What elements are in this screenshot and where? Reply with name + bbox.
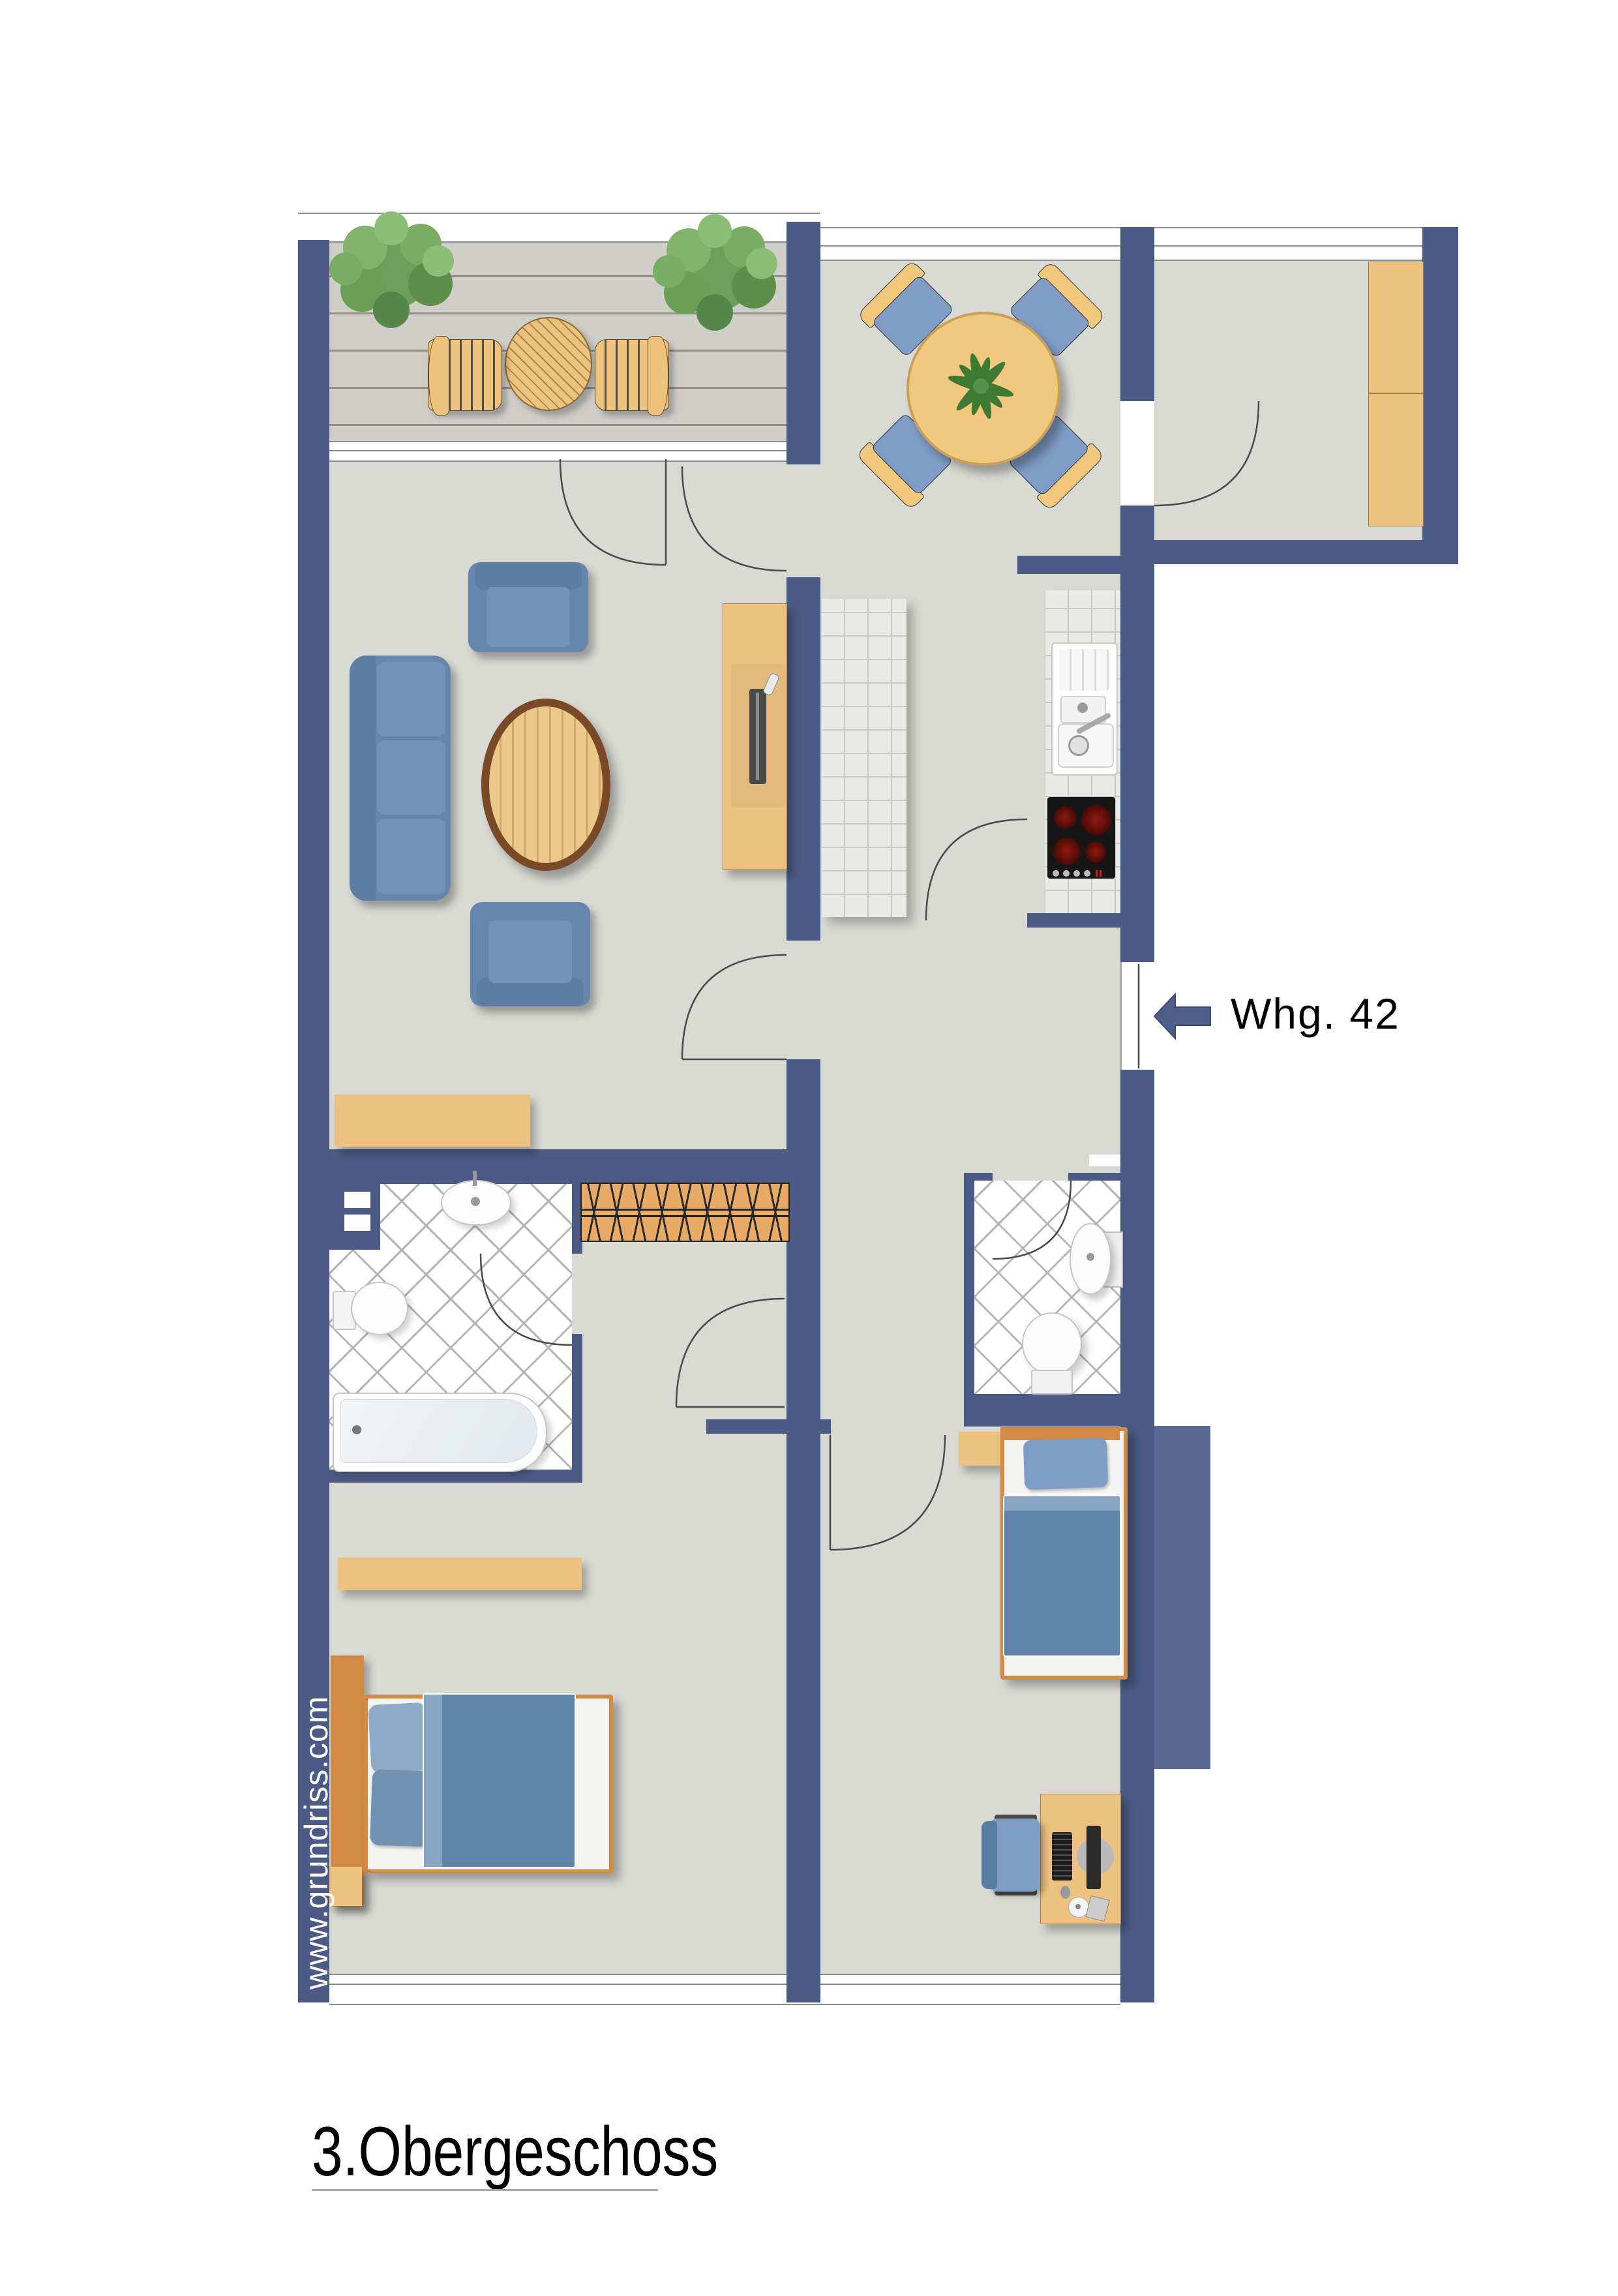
balcony-plant (329, 211, 454, 328)
balcony-plant (653, 214, 777, 331)
hall-living-door-arc (682, 955, 787, 1059)
bedroom-right-door-arc (830, 1435, 945, 1550)
page-title: 3.Obergeschoss (312, 2111, 718, 2192)
watermark: www.grundriss.com (297, 1520, 335, 1989)
entrance-arrow-icon (1154, 994, 1210, 1038)
balcony-door-arc (560, 459, 666, 565)
living-dining-door-arc (682, 466, 787, 571)
apartment-label: Whg. 42 (1231, 989, 1400, 1038)
plan-linework (0, 0, 1618, 2296)
title-underline (312, 2189, 658, 2191)
dining-table-plant (946, 352, 1015, 420)
floor-plan: Whg. 42 3.Obergeschoss www.grundriss.com (0, 0, 1618, 2296)
bathroom-door-arc (481, 1254, 572, 1345)
wc-door-arc (993, 1181, 1071, 1259)
storage-door-arc (1154, 401, 1259, 506)
bedroom-left-door-arc (676, 1299, 785, 1407)
kitchen-door-arc (926, 819, 1027, 920)
